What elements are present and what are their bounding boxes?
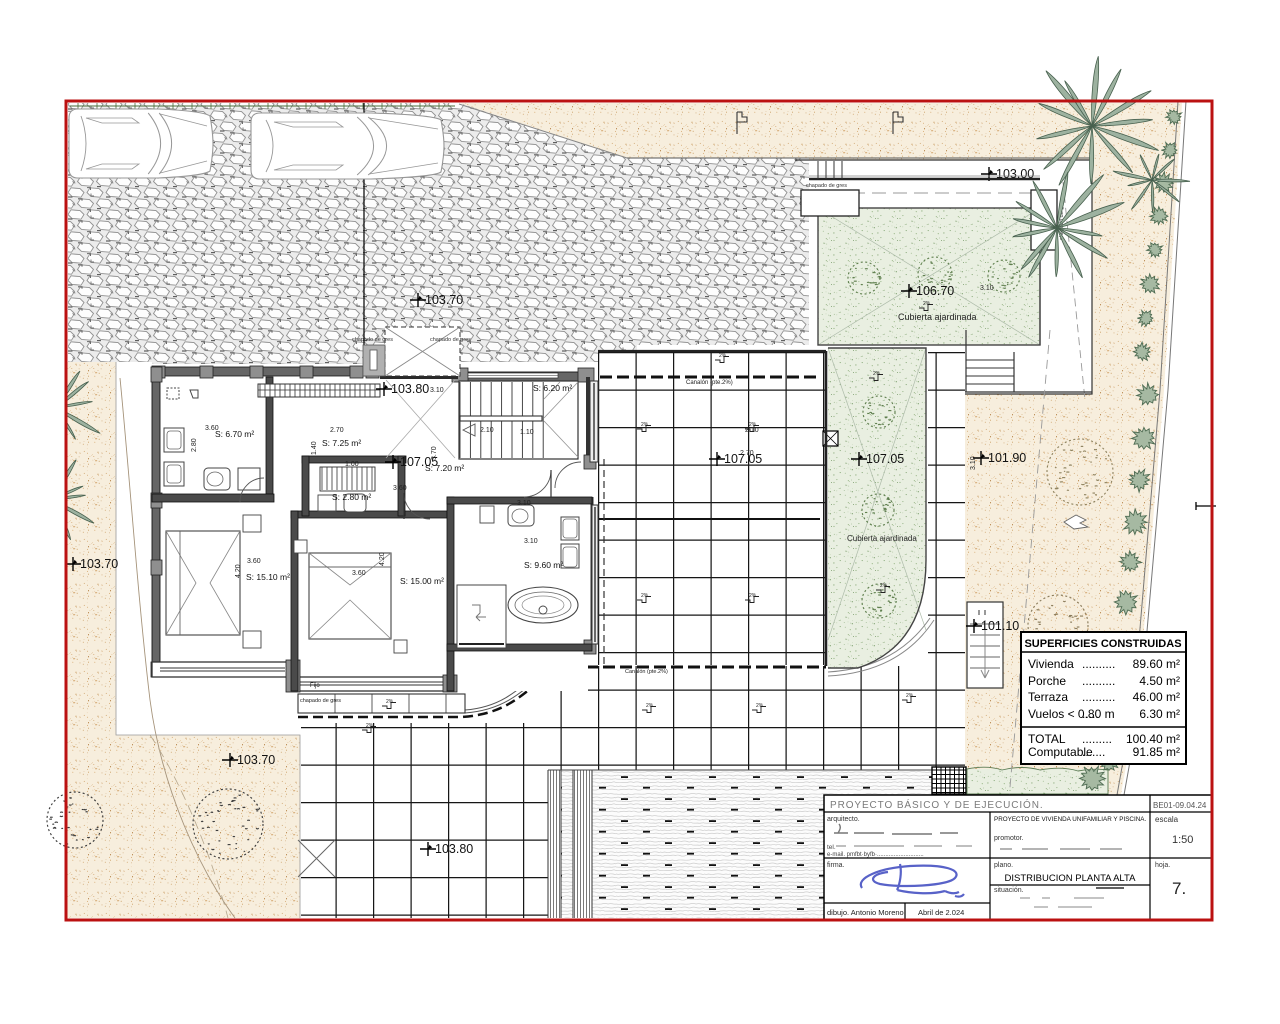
svg-text:promotor.: promotor.	[994, 835, 1024, 842]
svg-text:..........: ..........	[1082, 657, 1115, 671]
svg-text:DISTRIBUCION PLANTA ALTA: DISTRIBUCION PLANTA ALTA	[1005, 873, 1137, 884]
svg-text:103.80: 103.80	[435, 842, 473, 856]
svg-text:4.50 m²: 4.50 m²	[1139, 674, 1180, 688]
svg-text:chapado de gres: chapado de gres	[300, 698, 341, 704]
svg-text:3.60: 3.60	[205, 425, 219, 432]
svg-text:103.70: 103.70	[80, 557, 118, 571]
svg-text:2%: 2%	[719, 353, 727, 359]
svg-text:dibujo. Antonio Moreno: dibujo. Antonio Moreno	[827, 908, 904, 917]
svg-text:3.10: 3.10	[970, 456, 977, 470]
svg-text:S: 9.60 m²: S: 9.60 m²	[524, 560, 563, 570]
svg-text:89.60 m²: 89.60 m²	[1133, 657, 1180, 671]
svg-text:3.60: 3.60	[393, 485, 407, 492]
svg-text:3.70: 3.70	[431, 446, 438, 460]
svg-text:2%: 2%	[749, 593, 757, 599]
svg-text:2%: 2%	[386, 699, 394, 705]
svg-text:firma.: firma.	[827, 862, 845, 869]
svg-text:.....: .....	[1082, 707, 1099, 721]
svg-text:Cubierta ajardinada: Cubierta ajardinada	[898, 312, 977, 322]
svg-text:S: 6.70 m²: S: 6.70 m²	[215, 429, 254, 439]
svg-text:hoja.: hoja.	[1155, 862, 1170, 869]
svg-text:4.20: 4.20	[235, 564, 242, 578]
svg-text:100.40 m²: 100.40 m²	[1126, 732, 1180, 746]
svg-text:chapado de gres: chapado de gres	[430, 337, 471, 343]
svg-text:S: 6.20 m²: S: 6.20 m²	[533, 383, 572, 393]
svg-text:91.85 m²: 91.85 m²	[1133, 745, 1180, 759]
svg-text:2%: 2%	[873, 371, 881, 377]
svg-text:1.40: 1.40	[311, 441, 318, 455]
svg-text:Cubierta ajardinada: Cubierta ajardinada	[847, 534, 917, 543]
svg-text:2%: 2%	[366, 723, 374, 729]
svg-text:2%: 2%	[923, 301, 931, 307]
svg-text:3.10: 3.10	[430, 387, 444, 394]
svg-text:Terraza: Terraza	[1028, 690, 1068, 704]
svg-text:107.05: 107.05	[866, 452, 904, 466]
svg-text:e-mail. pmfbt·byfb·...........: e-mail. pmfbt·byfb·.....................…	[827, 852, 924, 858]
svg-text:BE01-09.04.24: BE01-09.04.24	[1153, 801, 1207, 810]
svg-text:Canalón (pte.2%): Canalón (pte.2%)	[686, 380, 733, 386]
svg-text:S: 2.80 m²: S: 2.80 m²	[332, 492, 371, 502]
svg-text:2%: 2%	[756, 703, 764, 709]
svg-text:1.10: 1.10	[520, 429, 534, 436]
svg-text:Canalón (pte.2%): Canalón (pte.2%)	[625, 669, 668, 675]
svg-text:Abril de 2.024: Abril de 2.024	[918, 908, 964, 917]
svg-text:.......: .......	[1082, 745, 1105, 759]
svg-text:3.10: 3.10	[524, 538, 538, 545]
svg-text:Vuelos < 0.80 m: Vuelos < 0.80 m	[1028, 707, 1115, 721]
svg-text:103.80: 103.80	[391, 382, 429, 396]
svg-text:Porche: Porche	[1028, 674, 1066, 688]
svg-text:4.20: 4.20	[379, 552, 386, 566]
svg-text:101.90: 101.90	[988, 451, 1026, 465]
svg-text:plano.: plano.	[994, 862, 1013, 869]
svg-text:1.00: 1.00	[345, 461, 359, 468]
svg-text:2%: 2%	[906, 693, 914, 699]
svg-text:S: 15.10 m²: S: 15.10 m²	[246, 572, 290, 582]
svg-text:106.70: 106.70	[916, 284, 954, 298]
svg-text:3.60: 3.60	[247, 558, 261, 565]
svg-text:2%: 2%	[641, 422, 649, 428]
svg-text:chapado de gres: chapado de gres	[352, 337, 393, 343]
svg-text:..........: ..........	[1082, 690, 1115, 704]
svg-text:103.70: 103.70	[237, 753, 275, 767]
svg-text:2%: 2%	[646, 703, 654, 709]
svg-text:7.: 7.	[1172, 879, 1186, 898]
svg-text:SUPERFICIES CONSTRUIDAS: SUPERFICIES CONSTRUIDAS	[1024, 638, 1181, 650]
svg-text:..........: ..........	[1082, 674, 1115, 688]
svg-text:PROYECTO BÁSICO Y DE EJECUCIÓN: PROYECTO BÁSICO Y DE EJECUCIÓN.	[830, 798, 1044, 811]
svg-text:101.10: 101.10	[981, 619, 1019, 633]
svg-text:S: 7.25 m²: S: 7.25 m²	[322, 438, 361, 448]
svg-text:46.00 m²: 46.00 m²	[1133, 690, 1180, 704]
svg-text:2.10: 2.10	[480, 427, 494, 434]
svg-text:situación.: situación.	[994, 887, 1024, 894]
svg-text:2.80: 2.80	[191, 438, 198, 452]
svg-text:3.10: 3.10	[980, 285, 994, 292]
svg-text:S: 7.20 m²: S: 7.20 m²	[425, 463, 464, 473]
svg-text:2.70: 2.70	[330, 427, 344, 434]
svg-text:3.10: 3.10	[517, 500, 531, 507]
svg-text:arquitecto.: arquitecto.	[827, 816, 860, 823]
svg-text:103.70: 103.70	[425, 293, 463, 307]
svg-text:S: 15.00 m²: S: 15.00 m²	[400, 576, 444, 586]
svg-text:PROYECTO DE VIVIENDA UNIFAMILI: PROYECTO DE VIVIENDA UNIFAMILIAR Y PISCI…	[994, 816, 1146, 823]
svg-text:3.60: 3.60	[352, 570, 366, 577]
svg-text:1:50: 1:50	[1172, 834, 1193, 846]
svg-text:2%: 2%	[641, 593, 649, 599]
svg-text:.........: .........	[1082, 732, 1112, 746]
svg-text:Vivienda: Vivienda	[1028, 657, 1074, 671]
svg-text:chapado de gres: chapado de gres	[806, 183, 847, 189]
svg-text:2%: 2%	[880, 583, 888, 589]
svg-text:TOTAL: TOTAL	[1028, 732, 1066, 746]
svg-text:2.10: 2.10	[745, 427, 759, 434]
svg-text:Fijo: Fijo	[310, 683, 320, 689]
svg-text:tel.: tel.	[827, 844, 836, 851]
svg-text:6.30 m²: 6.30 m²	[1139, 707, 1180, 721]
svg-text:escala: escala	[1155, 815, 1179, 824]
svg-text:2.70: 2.70	[740, 450, 754, 457]
